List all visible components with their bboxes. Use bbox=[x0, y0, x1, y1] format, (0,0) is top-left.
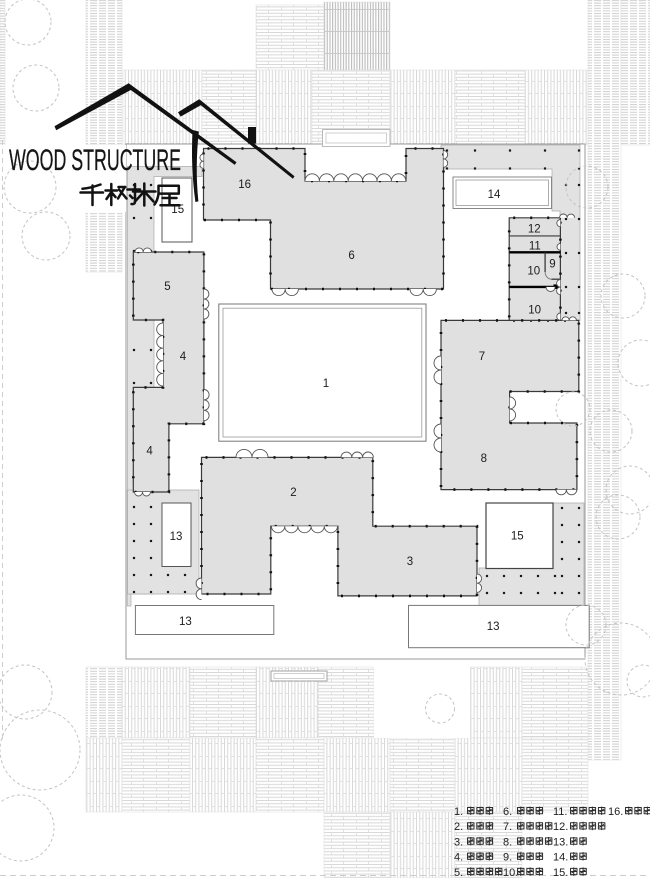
svg-text:5: 5 bbox=[164, 281, 170, 293]
svg-text:7: 7 bbox=[479, 351, 485, 363]
svg-text:2.: 2. bbox=[454, 821, 463, 833]
svg-text:5.: 5. bbox=[454, 867, 463, 878]
svg-text:14.: 14. bbox=[553, 852, 568, 864]
svg-text:15: 15 bbox=[511, 531, 524, 543]
svg-text:11: 11 bbox=[529, 241, 541, 253]
svg-text:9: 9 bbox=[549, 259, 555, 271]
svg-text:3: 3 bbox=[407, 556, 413, 568]
svg-text:14: 14 bbox=[488, 189, 501, 201]
svg-text:13: 13 bbox=[170, 531, 183, 543]
svg-text:16: 16 bbox=[238, 179, 251, 191]
svg-text:12: 12 bbox=[528, 224, 541, 236]
svg-text:12.: 12. bbox=[553, 821, 568, 833]
svg-text:13.: 13. bbox=[553, 836, 568, 848]
svg-text:15.: 15. bbox=[553, 867, 568, 878]
svg-text:10: 10 bbox=[528, 304, 541, 316]
svg-text:10.: 10. bbox=[503, 867, 518, 878]
svg-text:4: 4 bbox=[146, 446, 153, 458]
svg-text:10: 10 bbox=[527, 265, 540, 277]
svg-text:6.: 6. bbox=[503, 806, 512, 818]
svg-text:8: 8 bbox=[481, 453, 487, 465]
svg-text:6: 6 bbox=[348, 250, 354, 262]
svg-text:1.: 1. bbox=[454, 806, 463, 818]
svg-text:8.: 8. bbox=[503, 836, 512, 848]
svg-text:13: 13 bbox=[179, 616, 192, 628]
svg-text:7.: 7. bbox=[503, 821, 512, 833]
svg-text:4.: 4. bbox=[454, 852, 463, 864]
svg-text:9.: 9. bbox=[503, 852, 512, 864]
svg-text:1: 1 bbox=[323, 378, 329, 390]
svg-text:13: 13 bbox=[487, 621, 500, 633]
svg-text:16.: 16. bbox=[608, 806, 623, 818]
svg-text:3.: 3. bbox=[454, 836, 463, 848]
svg-text:4: 4 bbox=[180, 351, 187, 363]
svg-text:11.: 11. bbox=[553, 806, 567, 818]
svg-text:2: 2 bbox=[290, 487, 296, 499]
svg-text:WOOD STRUCTURE: WOOD STRUCTURE bbox=[9, 144, 181, 177]
